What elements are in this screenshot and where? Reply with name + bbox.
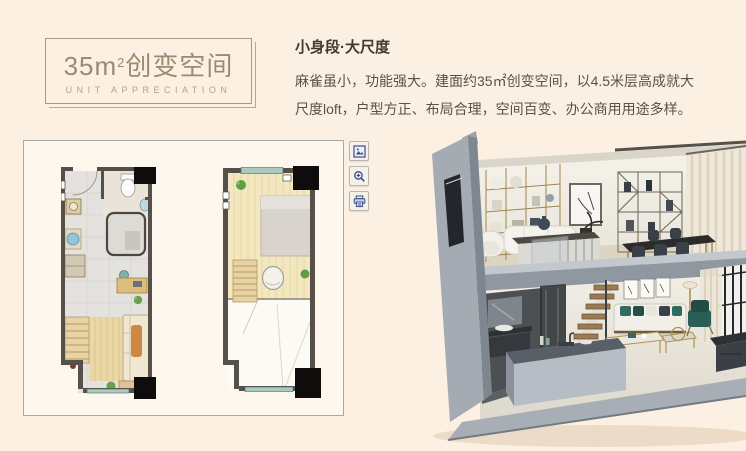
print-button[interactable] (349, 191, 369, 211)
floorplan-panel (23, 140, 344, 416)
section-subtitle: UNIT APPRECIATION (46, 85, 251, 95)
area-value: 35m (64, 51, 118, 81)
intro-line-2: 尺度loft，户型方正、布局合理，空间百变、办公商用用途多样。 (295, 95, 745, 123)
zoom-in-icon (353, 170, 366, 183)
zoom-in-button[interactable] (349, 166, 369, 186)
print-icon (353, 195, 366, 208)
section-title: 35m2创变空间 (46, 48, 251, 81)
intro-line-1: 麻雀虽小，功能强大。建面约35㎡创变空间，以4.5米层高成就大 (295, 67, 745, 95)
section-title-card: 35m2创变空间 UNIT APPRECIATION (45, 38, 252, 104)
floorplan-toolbar (349, 141, 371, 216)
floorplan-upper-image[interactable] (221, 164, 323, 400)
title-suffix: 创变空间 (125, 51, 233, 81)
unit-3d-render-image[interactable] (420, 128, 746, 451)
floorplan-lower-image[interactable] (61, 167, 156, 399)
unit-appreciation-section: 35m2创变空间 UNIT APPRECIATION 小身段·大尺度 麻雀虽小，… (0, 0, 746, 451)
view-image-icon (353, 145, 366, 158)
view-image-button[interactable] (349, 141, 369, 161)
intro-heading: 小身段·大尺度 (295, 36, 745, 57)
intro-text-block: 小身段·大尺度 麻雀虽小，功能强大。建面约35㎡创变空间，以4.5米层高成就大 … (295, 36, 745, 123)
